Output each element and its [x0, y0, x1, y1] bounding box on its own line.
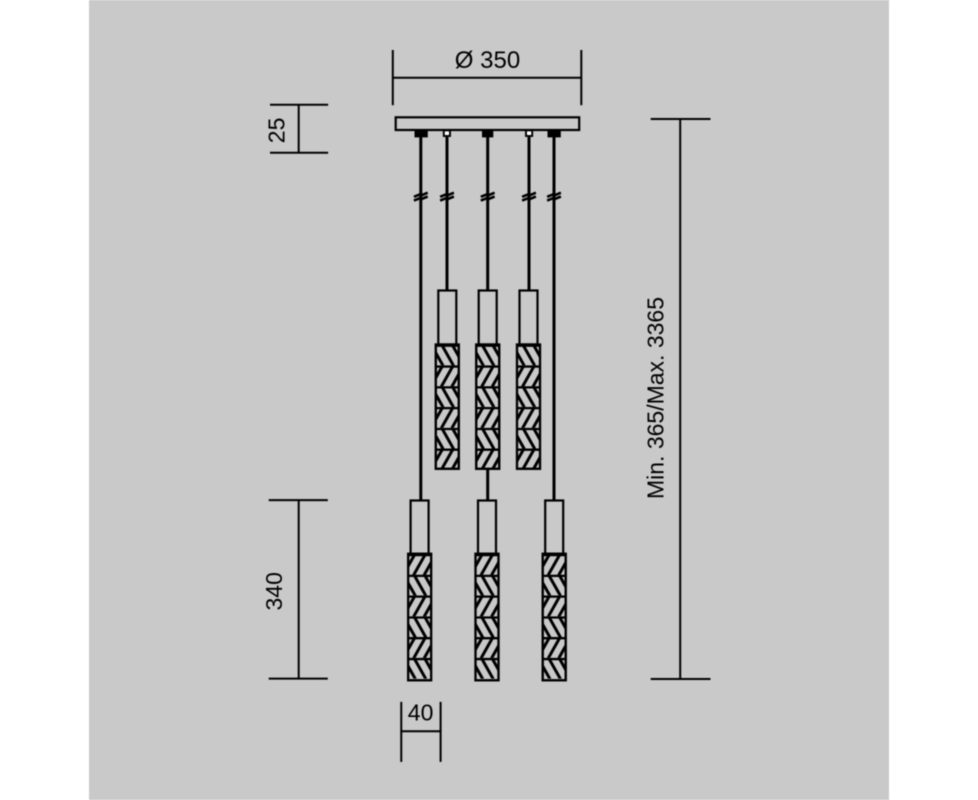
svg-text:Min. 365/Max. 3365: Min. 365/Max. 3365	[643, 297, 669, 499]
svg-text:340: 340	[261, 572, 287, 610]
svg-text:Ø 350: Ø 350	[455, 47, 520, 74]
svg-text:25: 25	[264, 118, 290, 144]
svg-text:40: 40	[408, 699, 434, 725]
